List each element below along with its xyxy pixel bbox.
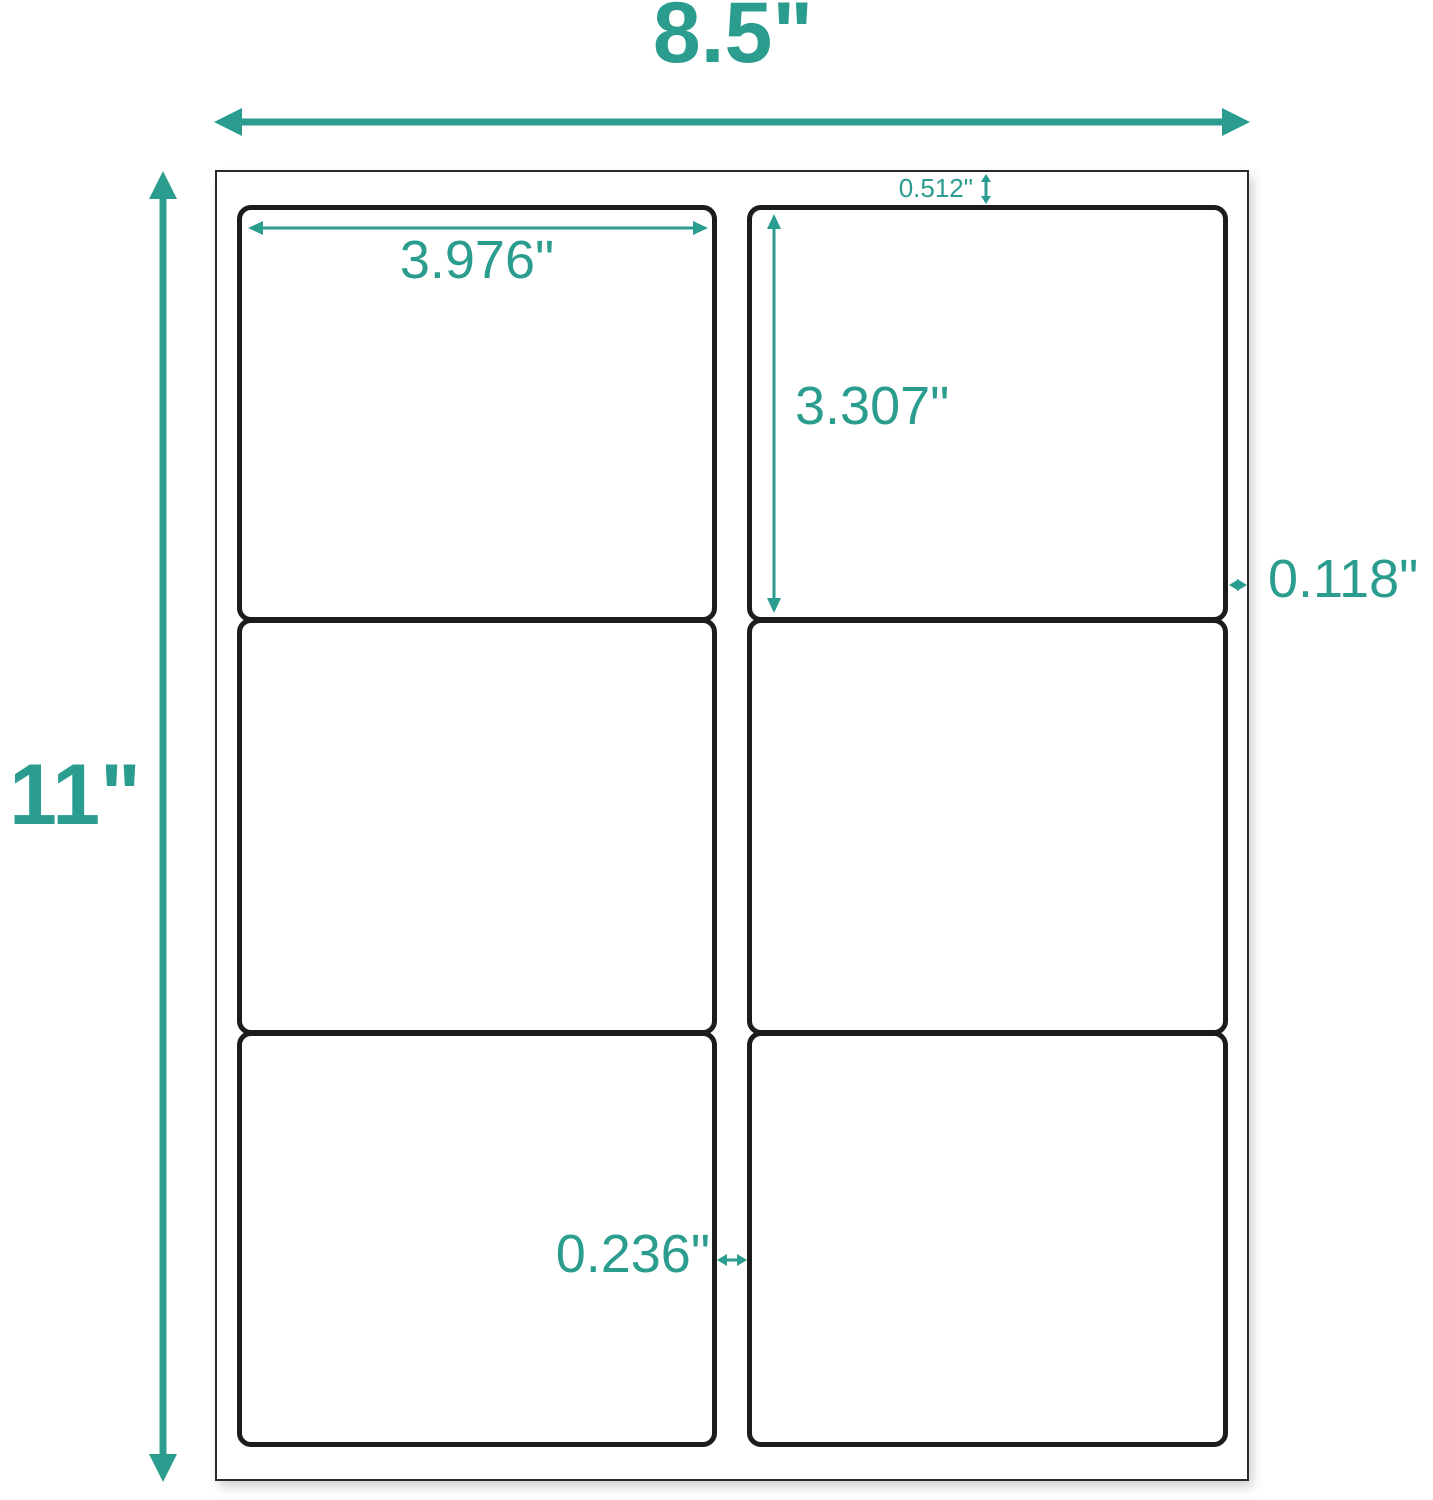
label-sheet: 3.976" 0.512" 3.307" 0.236" [215,170,1249,1481]
sheet-height-dimension-label: 11" [0,752,150,838]
arrow-shaft [160,197,167,1456]
label-cell [747,618,1228,1035]
arrowhead-right-icon [737,1254,747,1266]
column-gap-dimension-label: 0.236" [492,1226,710,1282]
sheet-width-dimension-label: 8.5" [215,0,1251,76]
sheet-height-arrow [149,171,177,1482]
side-margin-dimension-label: 0.118" [1268,552,1418,606]
arrowhead-left-icon [214,108,242,136]
column-gap-arrow [717,1253,747,1267]
top-margin-dimension-label: 0.512" [717,174,973,202]
label-cell [747,1031,1228,1447]
label-cell [237,618,717,1035]
arrow-shaft [240,119,1224,126]
side-margin-arrow [1229,578,1247,592]
top-margin-arrow [979,174,993,204]
arrowhead-right-icon [1222,108,1250,136]
arrowhead-down-icon [149,1454,177,1482]
arrowhead-down-icon [767,598,781,613]
page-canvas: 8.5" 11" 0.118" 3.976" [0,0,1433,1500]
label-height-dimension-label: 3.307" [795,378,949,434]
arrow-shaft [773,227,776,600]
label-width-dimension-label: 3.976" [237,232,717,288]
sheet-width-arrow [214,108,1250,136]
arrowhead-down-icon [981,196,991,204]
label-height-arrow [766,214,782,613]
arrowhead-right-icon [1237,579,1247,591]
arrowhead-up-icon [149,171,177,199]
sheet-inner: 3.976" 0.512" 3.307" 0.236" [217,172,1247,1479]
